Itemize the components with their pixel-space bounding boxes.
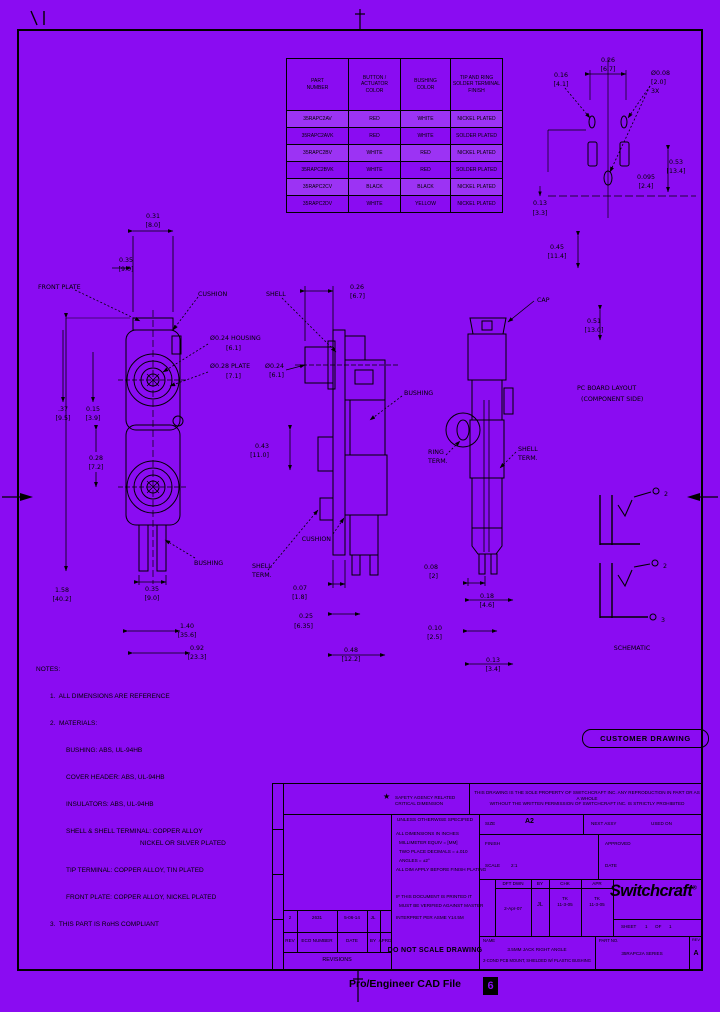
label-plate-dia: Ø0.28 PLATE	[210, 362, 250, 370]
rev-header-by: BY	[370, 938, 376, 944]
table-header-row: PART NUMBER BUTTON / ACTUATOR COLOR BUSH…	[287, 59, 503, 111]
rev-entry-by: JL	[371, 915, 376, 921]
dim-rear-b1: 0.08	[424, 564, 438, 571]
uos-line-1: ALL DIMENSIONS IN INCHES	[396, 831, 459, 837]
cell: YELLOW	[401, 196, 451, 213]
dim-front-l2: .37	[58, 406, 68, 413]
label-cap: CAP	[537, 297, 550, 304]
dim-front-top-mm: [8.0]	[146, 222, 161, 229]
dim-front-l4: 0.28	[89, 455, 103, 462]
dim-pcb-b1-mm: [3.3]	[533, 210, 548, 217]
dim-pcb-left: 0.16	[554, 72, 568, 79]
cell: 35RAPC2CV	[287, 179, 349, 196]
cell: 35RAPC2BVK	[287, 162, 349, 179]
dim-front-b1: 0.35	[145, 586, 159, 593]
cell: RED	[401, 145, 451, 162]
dim-rear-b4: 0.13	[486, 657, 500, 664]
scale-value: 2:1	[511, 863, 517, 869]
dim-side-b1: 0.07	[293, 585, 307, 592]
dim-side-b2: 0.25	[299, 613, 313, 620]
size-value: A2	[525, 818, 534, 827]
dim-side-dia-mm: [6.1]	[269, 372, 284, 379]
dim-side-b2-mm: [6.35]	[294, 623, 313, 630]
dim-pcb-r2-mm: [2.4]	[639, 183, 654, 190]
apr-label: APR	[592, 881, 601, 887]
scale-label: SCALE	[485, 863, 500, 869]
uos-line-3: TWO PLACE DECIMALS = ±.010	[399, 849, 468, 855]
dft-value: 2-Apr-07	[504, 906, 522, 912]
cell: SOLDER PLATED	[451, 128, 503, 145]
rev-value: A	[693, 950, 698, 959]
sheet-value: 1	[645, 924, 648, 930]
rev-entry-eco: 2631	[312, 915, 322, 921]
label-shell: SHELL	[266, 291, 286, 298]
dft-label: DFT DWN	[502, 881, 523, 887]
note-line: 3. THIS PART IS RoHS COMPLIANT	[36, 921, 226, 929]
dim-rear-b3: 0.18	[480, 593, 494, 600]
dim-front-b2-mm: [40.2]	[53, 596, 72, 603]
do-not-scale: DO NOT SCALE DRAWING	[388, 947, 483, 956]
dim-pcb-hole-qty: 3X	[651, 88, 660, 95]
parts-table: PART NUMBER BUTTON / ACTUATOR COLOR BUSH…	[286, 58, 503, 213]
cad-file-label: Pro/Engineer CAD File	[330, 978, 480, 990]
cell: 35RAPC2AV	[287, 111, 349, 128]
date-label: DATE	[605, 863, 617, 869]
note-line: FRONT PLATE: COPPER ALLOY, NICKEL PLATED	[36, 894, 226, 902]
used-on-label: USED ON	[651, 821, 672, 827]
name-label: NAME	[483, 938, 495, 943]
note-line: TIP TERMINAL: COPPER ALLOY, TIN PLATED	[36, 867, 226, 875]
schematic-terminal-2b: 2	[663, 563, 667, 570]
table-row: 35RAPC2DVWHITEYELLOWNICKEL PLATED	[287, 196, 503, 213]
printed-note-3: INTERPRET PER ASME Y14.5M	[396, 915, 464, 921]
drawing-name-1: 3.5MM JACK RIGHT ANGLE	[507, 947, 566, 953]
label-shell-term-2: TERM.	[251, 572, 272, 579]
cell: 35RAPC2BV	[287, 145, 349, 162]
cell: NICKEL PLATED	[451, 145, 503, 162]
label-ring-term-2: TERM.	[427, 458, 448, 465]
printed-note-1: IF THIS DOCUMENT IS PRINTED IT	[396, 894, 472, 900]
label-pcb-layout-1: PC BOARD LAYOUT	[577, 385, 636, 392]
dim-front-l3-mm: [3.9]	[86, 415, 101, 422]
schematic	[600, 488, 659, 620]
star-icon: ★	[383, 792, 390, 802]
label-cushion-2: CUSHION	[302, 536, 332, 543]
label-pcb-layout-2: (COMPONENT SIDE)	[581, 396, 643, 403]
logo-text: Switchcraft	[610, 882, 692, 900]
dim-front-b4-mm: [23.3]	[188, 654, 207, 661]
dim-pcb-left-mm: [4.1]	[554, 81, 569, 88]
chk-label: CHK	[560, 881, 570, 887]
rev-label: REV	[692, 938, 700, 943]
title-block: ★ SAFETY AGENCY RELATED CRITICAL DIMENSI…	[272, 783, 702, 970]
label-housing-mm: [6.1]	[226, 345, 241, 352]
dim-mid-r1-mm: [11.4]	[548, 253, 567, 260]
drawing-name-2: 2-COND PCB MOUNT, SHIELDED W/ PLASTIC BU…	[483, 958, 591, 963]
chk-value: TK 11-3-05	[557, 896, 573, 907]
dim-side-dia: Ø0.24	[265, 362, 284, 370]
cell: NICKEL PLATED	[451, 111, 503, 128]
cell: NICKEL PLATED	[451, 196, 503, 213]
cell: NICKEL PLATED	[451, 179, 503, 196]
col-part-number: PART NUMBER	[287, 59, 349, 111]
label-front-plate: FRONT PLATE	[38, 284, 81, 291]
registered-mark-icon: ®	[692, 886, 696, 892]
note-line: NICKEL OR SILVER PLATED	[36, 840, 226, 848]
dim-side-b3: 0.48	[344, 647, 358, 654]
pcb-layout	[540, 58, 696, 340]
label-shell-term-1: SHELL	[252, 563, 272, 570]
table-row: 35RAPC2AVREDWHITENICKEL PLATED	[287, 111, 503, 128]
approved-label: APPROVED	[605, 841, 631, 847]
schematic-label: SCHEMATIC	[614, 645, 651, 652]
col-terminal-finish: TIP AND RING SOLDER TERMINAL FINISH	[451, 59, 503, 111]
note-line: 1. ALL DIMENSIONS ARE REFERENCE	[36, 693, 226, 701]
note-line: COVER HEADER: ABS, UL-94HB	[36, 774, 226, 782]
dim-rear-b4-mm: [3.4]	[486, 666, 501, 673]
dim-pcb-hole-mm: [2.0]	[651, 79, 666, 86]
label-bushing: BUSHING	[194, 560, 223, 567]
notes-title: NOTES:	[36, 666, 226, 674]
uos-title: UNLESS OTHERWISE SPECIFIED	[397, 818, 473, 824]
note-line: INSULATORS: ABS, UL-94HB	[36, 801, 226, 809]
rev-header-date: DATE	[346, 938, 358, 944]
note-line: SHELL & SHELL TERMINAL: COPPER ALLOY	[36, 828, 226, 836]
label-cushion: CUSHION	[198, 291, 228, 298]
rev-entry-date: 5-06-14	[344, 915, 360, 921]
size-label: SIZE	[485, 821, 495, 827]
dim-front-l1: 0.35	[119, 257, 133, 264]
dim-mid-r2-mm: [13.0]	[585, 327, 604, 334]
label-bushing-2: BUSHING	[404, 390, 433, 397]
customer-drawing-stamp: CUSTOMER DRAWING	[582, 729, 709, 748]
dim-rear-b1-mm: [2]	[429, 573, 438, 580]
front-view	[118, 310, 188, 584]
cell: RED	[349, 128, 401, 145]
rear-view	[446, 318, 513, 574]
dim-side-top: 0.26	[350, 284, 364, 291]
dim-mid-r1: 0.45	[550, 244, 564, 251]
drawing-sheet: 0.31 [8.0] 0.35 [9.0] FRONT PLATE CUSHIO…	[0, 0, 720, 1012]
dim-front-b1-mm: [9.0]	[145, 595, 160, 602]
dim-pcb-r1-mm: [13.4]	[667, 168, 686, 175]
dim-side-b3-mm: [12.2]	[342, 656, 361, 663]
uos-line-4: ANGLES = ±2°	[399, 858, 430, 864]
dim-front-l1-mm: [9.0]	[119, 266, 134, 273]
cell: 35RAPC2AVK	[287, 128, 349, 145]
cell: RED	[349, 111, 401, 128]
cell: WHITE	[349, 196, 401, 213]
cell: WHITE	[401, 111, 451, 128]
star-note: SAFETY AGENCY RELATED CRITICAL DIMENSION	[395, 795, 467, 806]
table-row: 35RAPC2CVBLACKBLACKNICKEL PLATED	[287, 179, 503, 196]
label-shell-term2-1: SHELL	[518, 446, 538, 453]
table-row: 35RAPC2BVWHITEREDNICKEL PLATED	[287, 145, 503, 162]
part-no-value: 35RAPC2A SERIES	[621, 951, 662, 957]
table-row: 35RAPC2AVKREDWHITESOLDER PLATED	[287, 128, 503, 145]
rev-header-rev: REV	[285, 938, 294, 944]
dim-pcb-r2: 0.095	[637, 174, 655, 181]
part-no-label: PART NO.	[599, 938, 618, 943]
of-label: OF	[655, 924, 661, 930]
dim-front-l4-mm: [7.2]	[89, 464, 104, 471]
zone-number-badge: 6	[483, 977, 498, 995]
rev-header-eco: ECO NUMBER	[301, 938, 332, 944]
cell: 35RAPC2DV	[287, 196, 349, 213]
switchcraft-logo: Switchcraft®	[603, 882, 703, 901]
notes-block: NOTES: 1. ALL DIMENSIONS ARE REFERENCE 2…	[36, 666, 226, 929]
dim-front-l3: 0.15	[86, 406, 100, 413]
dim-rear-b2-mm: [2.5]	[427, 634, 442, 641]
by-value: JL	[537, 902, 543, 909]
finish-label: FINISH	[485, 841, 500, 847]
col-bushing-color: BUSHING COLOR	[401, 59, 451, 111]
by-label: BY	[537, 881, 543, 887]
cell: WHITE	[349, 145, 401, 162]
note-line: BUSHING: ABS, UL-94HB	[36, 747, 226, 755]
rear-view-dims	[446, 301, 534, 664]
schematic-terminal-2a: 2	[664, 491, 668, 498]
proprietary-note-2: WITHOUT THE WRITTEN PERMISSION OF SWITCH…	[473, 801, 701, 807]
cell: BLACK	[349, 179, 401, 196]
col-actuator-color: BUTTON / ACTUATOR COLOR	[349, 59, 401, 111]
dim-front-b3: 1.40	[180, 623, 194, 630]
label-housing-dia: Ø0.24 HOUSING	[210, 334, 261, 342]
dim-side-b1-mm: [1.8]	[292, 594, 307, 601]
dim-front-l2-mm: [9.5]	[56, 415, 71, 422]
revisions-title: REVISIONS	[322, 957, 351, 964]
sheet-label: SHEET	[621, 924, 636, 930]
dim-pcb-b1: 0.13	[533, 200, 547, 207]
next-assy-label: NEXT ASSY	[591, 821, 616, 827]
note-line: 2. MATERIALS:	[36, 720, 226, 728]
uos-line-2: MILLIMETER EQUIV = [MM]	[399, 840, 458, 846]
dim-pcb-r1: 0.53	[669, 159, 683, 166]
dim-pcb-hole: Ø0.08	[651, 69, 670, 77]
front-view-dims	[63, 231, 208, 653]
printed-note-2: MUST BE VERIFIED AGAINST MASTER	[399, 903, 483, 909]
cell: WHITE	[349, 162, 401, 179]
cell: RED	[401, 162, 451, 179]
label-ring-term-1: RING	[428, 449, 444, 456]
sheet-total: 1	[669, 924, 672, 930]
cell: SOLDER PLATED	[451, 162, 503, 179]
uos-line-5: ALL DIM APPLY BEFORE FINISH PLATING	[396, 867, 486, 873]
dim-mid-r2: 0.51	[587, 318, 601, 325]
dim-side-l1-mm: [11.0]	[250, 452, 269, 459]
table-row: 35RAPC2BVKWHITEREDSOLDER PLATED	[287, 162, 503, 179]
dim-pcb-pitch: 0.26	[601, 57, 615, 64]
rev-header-aprd: APRD	[379, 938, 392, 944]
label-shell-term2-2: TERM.	[517, 455, 538, 462]
dim-side-l1: 0.43	[255, 443, 269, 450]
cell: WHITE	[401, 128, 451, 145]
dim-rear-b3-mm: [4.6]	[480, 602, 495, 609]
dim-side-top-mm: [6.7]	[350, 293, 365, 300]
dim-front-b4: 0.92	[190, 645, 204, 652]
dim-front-b3-mm: [35.6]	[178, 632, 197, 639]
dim-pcb-pitch-mm: [6.7]	[601, 66, 616, 73]
proprietary-note-1: THIS DRAWING IS THE SOLE PROPERTY OF SWI…	[473, 790, 701, 801]
rev-entry-rev: 2	[289, 915, 292, 921]
schematic-terminal-3: 3	[661, 617, 665, 624]
dim-rear-b2: 0.10	[428, 625, 442, 632]
dim-front-top: 0.31	[146, 213, 160, 220]
label-plate-mm: [7.1]	[226, 373, 241, 380]
dim-front-b2: 1.58	[55, 587, 69, 594]
cell: BLACK	[401, 179, 451, 196]
